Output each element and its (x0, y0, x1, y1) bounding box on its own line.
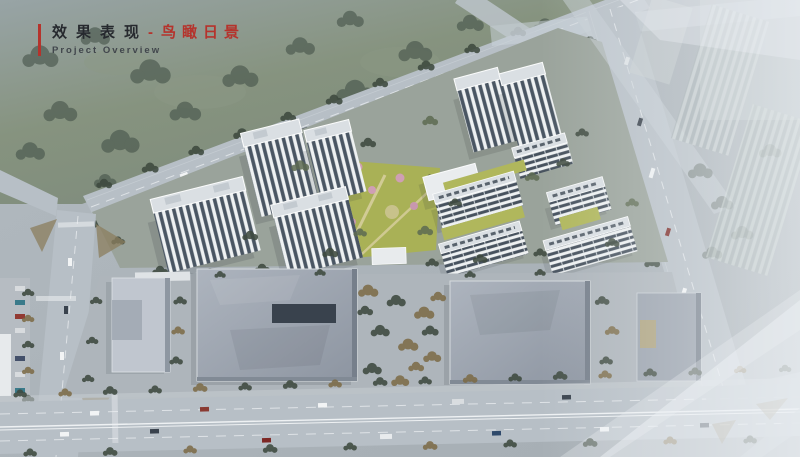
commercial-hall-2 (191, 269, 357, 385)
haze-overlay (540, 0, 800, 457)
title-accent-chinese: 鸟瞰日景 (161, 24, 245, 41)
aerial-rendering (0, 0, 800, 457)
rendering-page: 效果表现-鸟瞰日景 Project Overview (0, 0, 800, 457)
subtitle-english: Project Overview (52, 45, 245, 56)
title-line: 效果表现-鸟瞰日景 (52, 24, 245, 42)
title-accent-bar (38, 24, 41, 56)
commercial-hall-1 (106, 278, 170, 374)
title-chinese: 效果表现 (52, 24, 148, 41)
title-text: 效果表现-鸟瞰日景 Project Overview (52, 24, 245, 56)
title-separator: - (148, 24, 159, 41)
south-gate-building (372, 247, 407, 264)
courtyard-opening (272, 304, 336, 323)
parking-strip (0, 278, 34, 410)
page-title: 效果表现-鸟瞰日景 Project Overview (38, 24, 245, 56)
